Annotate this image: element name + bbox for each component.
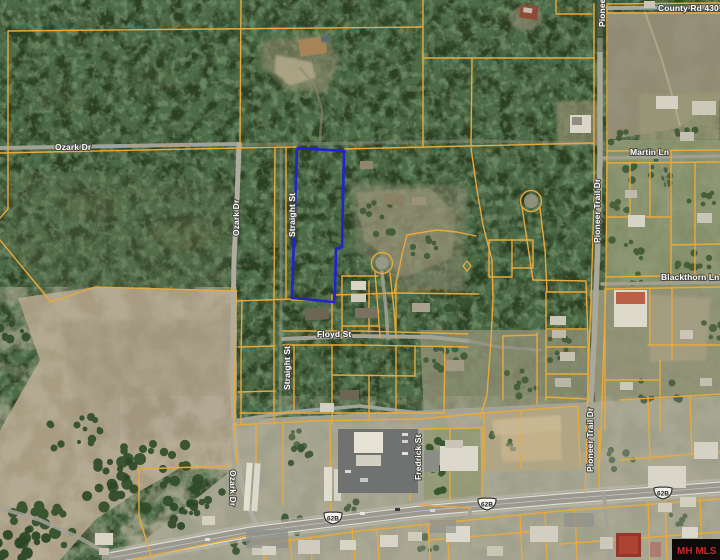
svg-text:County Rd 430: County Rd 430 <box>658 3 719 13</box>
svg-text:Pioneer Trail Dr: Pioneer Trail Dr <box>592 178 602 243</box>
svg-text:Straight St: Straight St <box>282 346 292 390</box>
svg-text:Fredrick St: Fredrick St <box>413 434 423 480</box>
svg-text:Ozark Dr: Ozark Dr <box>231 199 241 236</box>
svg-text:Pioneer Trail Dr: Pioneer Trail Dr <box>585 407 595 472</box>
svg-text:Ozark Dr: Ozark Dr <box>228 470 238 507</box>
svg-text:Martin Ln: Martin Ln <box>630 147 669 157</box>
svg-text:Straight St: Straight St <box>287 193 297 237</box>
svg-text:Pionee: Pionee <box>597 0 607 27</box>
svg-text:Ozark Dr: Ozark Dr <box>55 142 92 152</box>
svg-text:Floyd St: Floyd St <box>317 329 351 339</box>
svg-text:62B: 62B <box>657 490 669 497</box>
svg-text:MH MLS: MH MLS <box>677 546 717 557</box>
svg-text:62B: 62B <box>481 501 493 508</box>
svg-text:62B: 62B <box>327 515 339 522</box>
svg-text:Blackthorn Ln: Blackthorn Ln <box>661 272 719 282</box>
